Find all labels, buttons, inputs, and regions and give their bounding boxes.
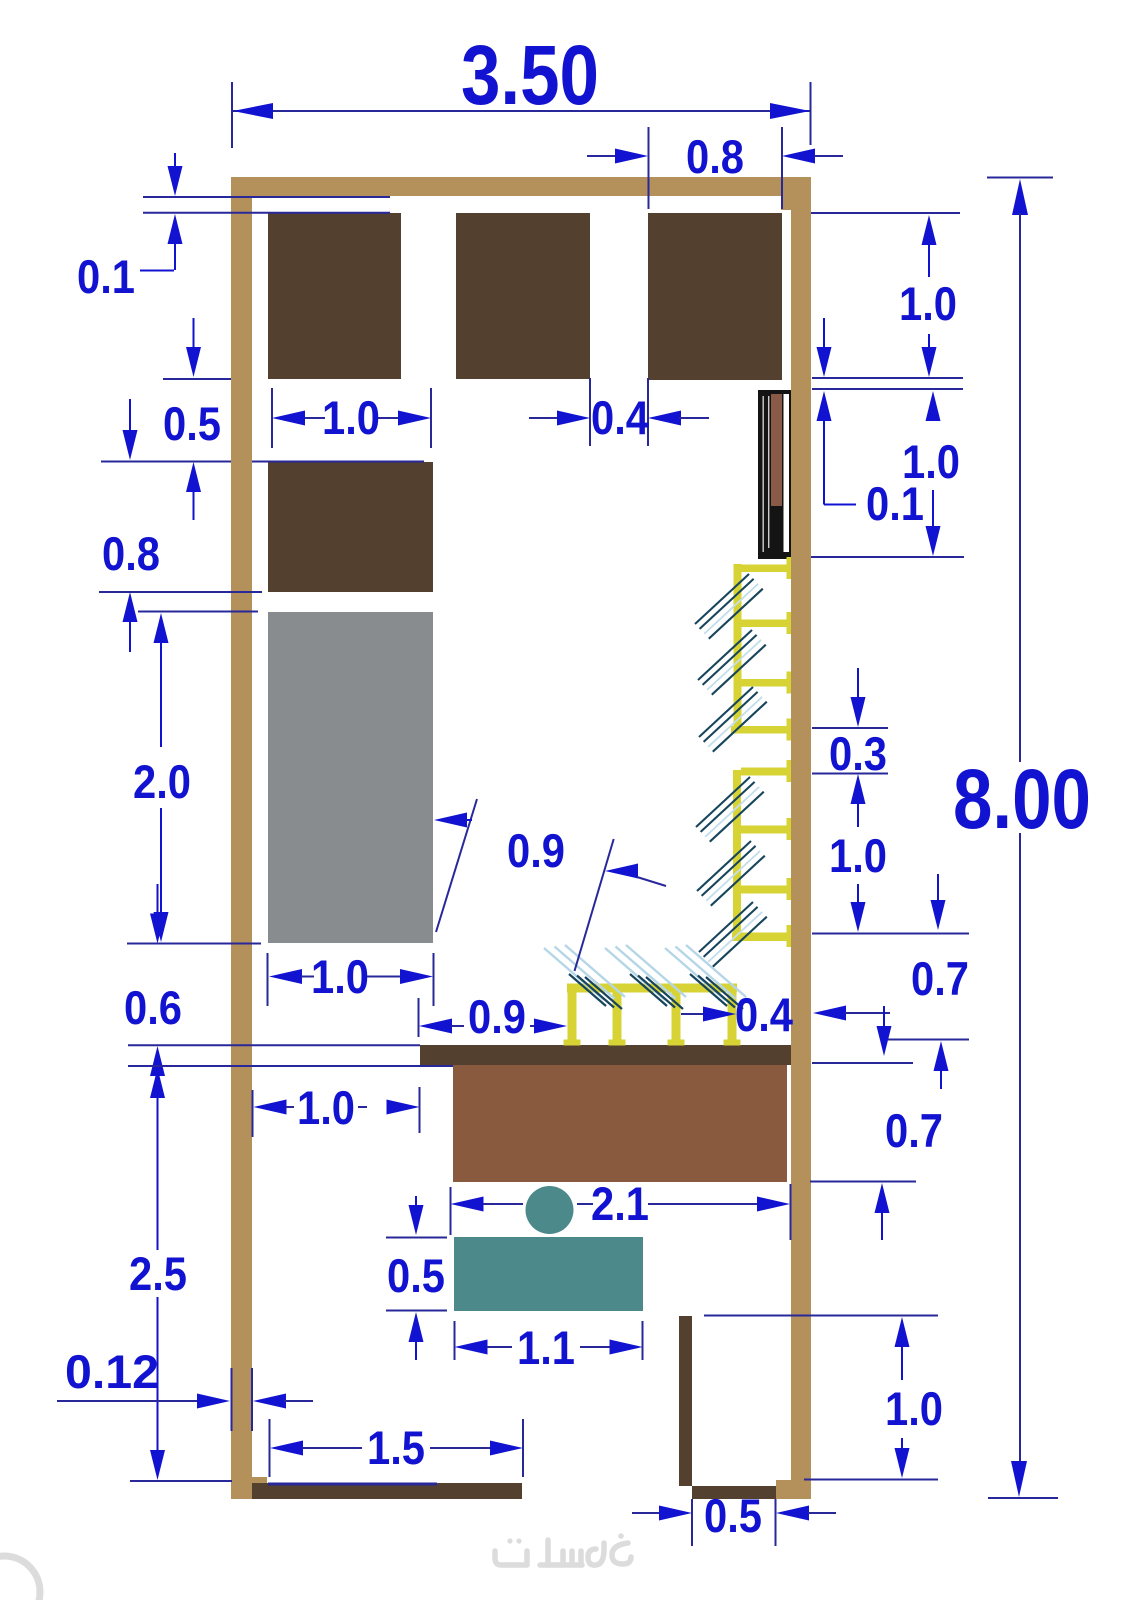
svg-text:1.0: 1.0 <box>899 277 957 330</box>
svg-text:1.0: 1.0 <box>322 391 380 444</box>
svg-text:0.5: 0.5 <box>163 397 221 450</box>
svg-text:2.1: 2.1 <box>591 1177 649 1230</box>
svg-text:1.1: 1.1 <box>517 1321 575 1374</box>
svg-text:8.00: 8.00 <box>953 752 1091 846</box>
svg-text:1.0: 1.0 <box>829 829 887 882</box>
svg-text:1.0: 1.0 <box>885 1382 943 1435</box>
svg-text:0.9: 0.9 <box>468 990 526 1043</box>
svg-text:1.0: 1.0 <box>297 1081 355 1134</box>
svg-text:0.6: 0.6 <box>124 981 182 1034</box>
svg-text:0.3: 0.3 <box>829 727 887 780</box>
svg-text:0.5: 0.5 <box>387 1249 445 1302</box>
svg-text:0.7: 0.7 <box>885 1104 943 1157</box>
svg-text:0.1: 0.1 <box>866 477 924 530</box>
svg-text:3.50: 3.50 <box>461 28 599 122</box>
svg-text:2.5: 2.5 <box>129 1247 187 1300</box>
svg-text:1.5: 1.5 <box>367 1421 425 1474</box>
svg-text:2.0: 2.0 <box>133 755 191 808</box>
svg-text:0.9: 0.9 <box>507 824 565 877</box>
svg-text:1.0: 1.0 <box>311 950 369 1003</box>
svg-text:0.4: 0.4 <box>735 988 793 1041</box>
svg-text:0.8: 0.8 <box>686 130 744 183</box>
svg-text:0.12: 0.12 <box>65 1345 159 1398</box>
svg-text:0.4: 0.4 <box>591 391 649 444</box>
svg-text:0.1: 0.1 <box>77 250 135 303</box>
svg-text:0.5: 0.5 <box>704 1489 762 1542</box>
svg-text:0.8: 0.8 <box>102 527 160 580</box>
svg-text:0.7: 0.7 <box>911 952 969 1005</box>
